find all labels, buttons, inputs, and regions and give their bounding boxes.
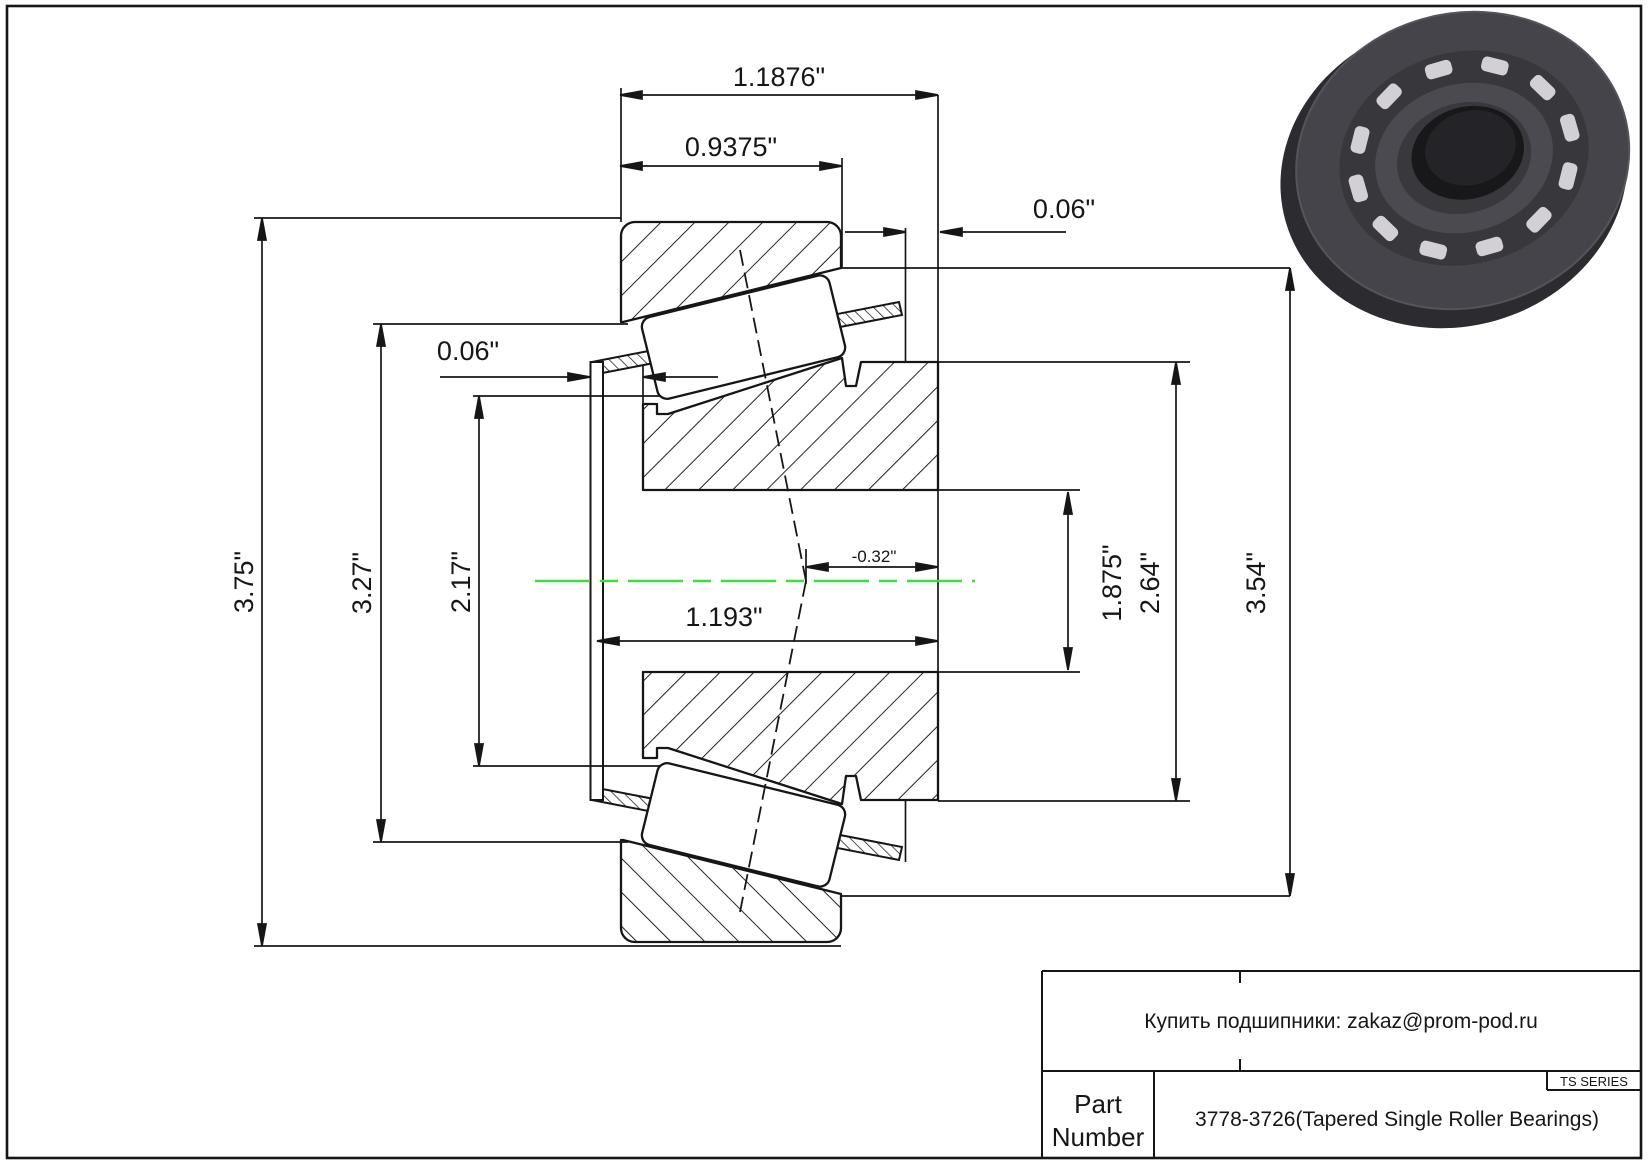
dim-flange-od-label: 3.75" bbox=[229, 551, 259, 613]
part-number-value: 3778-3726(Tapered Single Roller Bearings… bbox=[1195, 1108, 1599, 1131]
dim-cone-width-label: 1.193" bbox=[685, 602, 762, 632]
dim-race-small-label: 2.17" bbox=[446, 551, 476, 613]
bearing-drawing: 1.1876" 0.9375" 0.06" 0.06" 1.193" -0.32… bbox=[0, 0, 1649, 1167]
part-label-line1: Part bbox=[1074, 1089, 1122, 1119]
series-label: TS SERIES bbox=[1560, 1074, 1628, 1089]
dim-outer-od-label: 3.54" bbox=[1241, 552, 1271, 614]
dim-cup-width-label: 0.9375" bbox=[685, 132, 777, 162]
dim-cup-inner-label: 3.27" bbox=[347, 552, 377, 614]
part-label-line2: Number bbox=[1052, 1122, 1145, 1152]
dim-rib-od-label: 2.64" bbox=[1135, 552, 1165, 614]
bearing-3d-image bbox=[1242, 0, 1649, 369]
drawing-page: 1.1876" 0.9375" 0.06" 0.06" 1.193" -0.32… bbox=[0, 0, 1649, 1167]
title-block-note: Купить подшипники: zakaz@prom-pod.ru bbox=[1144, 1010, 1538, 1033]
dim-center-offset-label: -0.32" bbox=[852, 547, 897, 566]
dim-back-gap-label: 0.06" bbox=[1033, 194, 1095, 224]
dim-front-gap-label: 0.06" bbox=[437, 336, 499, 366]
dim-overall-width-label: 1.1876" bbox=[733, 62, 825, 92]
dim-bore-label: 1.875" bbox=[1097, 544, 1127, 621]
